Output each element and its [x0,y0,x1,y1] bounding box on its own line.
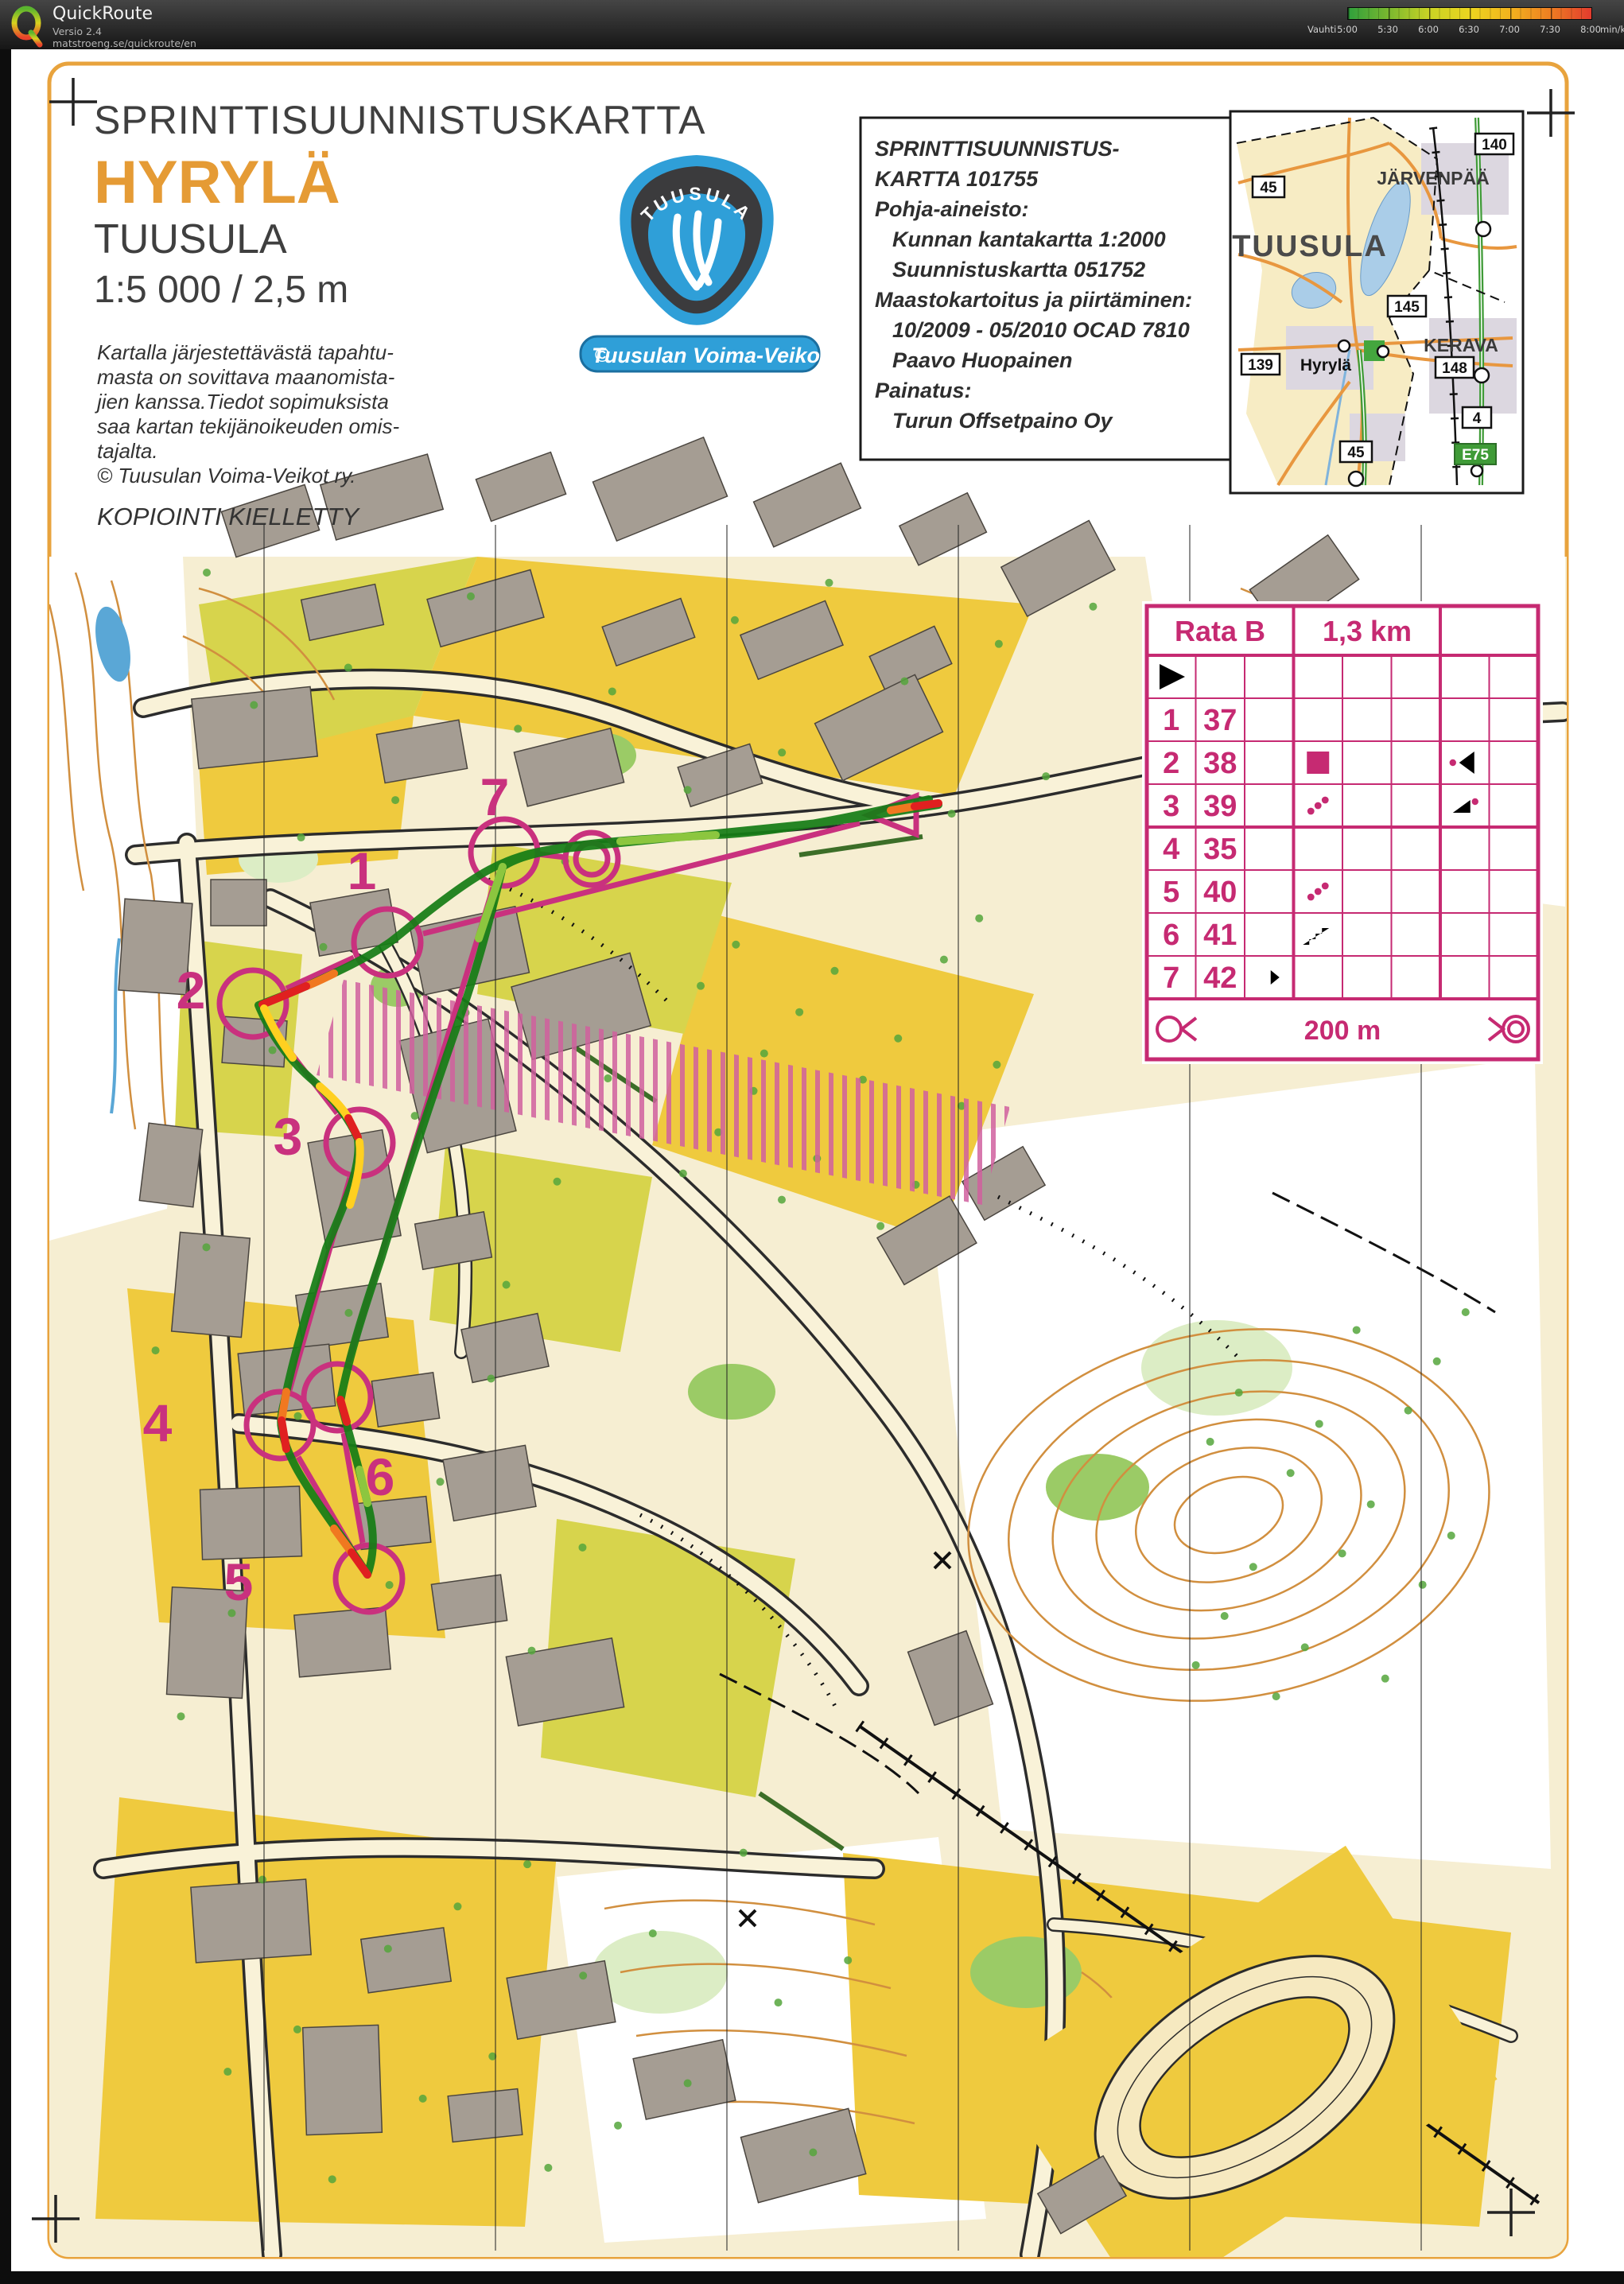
svg-text:7: 7 [1163,961,1179,995]
pace-tick: 6:00 [1418,24,1439,35]
page-title: SPRINTTISUUNNISTUSKARTTA [94,98,705,142]
svg-text:140: 140 [1482,137,1507,153]
control-number: 4 [143,1393,173,1452]
svg-text:35: 35 [1203,833,1237,866]
euro-route-badge: E75 [1462,447,1489,464]
control-description-sheet: Rata B 1,3 km 137 238 339 435 540 641 74… [1142,601,1543,1064]
app-title: QuickRoute [52,3,196,25]
control-number: 5 [224,1552,254,1611]
municipality: TUUSULA [94,216,287,262]
svg-text:KARTTA 101755: KARTTA 101755 [875,167,1039,191]
pace-tick: 8:00 [1580,24,1601,35]
pace-legend-unit: min/km [1600,24,1624,35]
control-number: 1 [348,841,377,900]
svg-text:42: 42 [1203,961,1237,995]
svg-text:Turun Offsetpaino Oy: Turun Offsetpaino Oy [892,409,1114,433]
svg-text:39: 39 [1203,790,1237,823]
svg-text:148: 148 [1442,360,1467,377]
svg-text:masta on sovittava maanomista-: masta on sovittava maanomista- [97,365,395,389]
svg-text:Kunnan kantakartta 1:2000: Kunnan kantakartta 1:2000 [892,227,1166,251]
control-number: 2 [177,961,206,1020]
quickroute-window: QuickRoute Versio 2.4 matstroeng.se/quic… [0,0,1624,2284]
inset-map: 45 140 145 139 148 4 45 E75 JÄRVENPÄÄ TU… [1230,111,1523,493]
feature-symbol-icon [1307,752,1329,774]
svg-text:45: 45 [1347,445,1365,461]
app-version: Versio 2.4 [52,25,196,38]
svg-text:37: 37 [1203,704,1237,737]
course-name: Rata B [1175,615,1265,647]
svg-text:tajalta.: tajalta. [97,439,158,463]
svg-text:145: 145 [1394,299,1420,316]
club-logo: TUUSULA © Tuusulan Voima-Veikot [581,155,828,371]
logo-banner-text: Tuusulan Voima-Veikot [592,344,828,367]
svg-text:Kartalla järjestettävästä tapa: Kartalla järjestettävästä tapahtu- [97,340,394,364]
svg-text:41: 41 [1203,919,1237,952]
quickroute-logo-icon [8,5,45,48]
control-number: 3 [274,1107,303,1166]
pace-gradient-bar [1347,7,1592,20]
pace-tick: 7:30 [1540,24,1560,35]
svg-text:Paavo Huopainen: Paavo Huopainen [892,348,1073,372]
svg-text:Suunnistuskartta 051752: Suunnistuskartta 051752 [892,258,1145,282]
svg-text:Pohja-aineisto:: Pohja-aineisto: [875,197,1029,221]
control-number: 6 [366,1447,395,1506]
app-url: matstroeng.se/quickroute/en [52,37,196,50]
svg-text:10/2009 - 05/2010 OCAD 7810: 10/2009 - 05/2010 OCAD 7810 [892,318,1190,342]
scan-edge-bottom [0,2271,1624,2284]
pace-tick: 5:30 [1377,24,1398,35]
pace-legend: Vauhti 5:00 5:30 6:00 6:30 7:00 7:30 8:0… [1306,5,1600,45]
svg-text:5: 5 [1163,876,1179,909]
pace-legend-prefix: Vauhti [1307,24,1336,35]
svg-text:2: 2 [1163,747,1179,780]
svg-text:45: 45 [1260,180,1277,196]
inset-label-tuusula: TUUSULA [1232,230,1388,263]
map-scale: 1:5 000 / 2,5 m [94,269,348,311]
svg-text:40: 40 [1203,876,1237,909]
svg-text:SPRINTTISUUNNISTUS-: SPRINTTISUUNNISTUS- [875,137,1120,161]
copy-notice: KOPIOINTI KIELLETTY [97,503,360,530]
svg-text:Maastokartoitus ja piirtäminen: Maastokartoitus ja piirtäminen: [875,288,1192,312]
inset-label-hyryla: Hyrylä [1300,356,1352,375]
toolbar: QuickRoute Versio 2.4 matstroeng.se/quic… [0,0,1624,49]
scale-distance: 200 m [1304,1016,1381,1046]
svg-text:jien kanssa.Tiedot sopimuksist: jien kanssa.Tiedot sopimuksista [95,390,389,414]
svg-text:6: 6 [1163,919,1179,952]
svg-text:38: 38 [1203,747,1237,780]
inset-label-kerava: KERAVA [1424,335,1498,355]
svg-text:4: 4 [1473,410,1482,427]
svg-text:3: 3 [1163,790,1179,823]
svg-text:© Tuusulan Voima-Veikot ry.: © Tuusulan Voima-Veikot ry. [97,464,356,487]
map-name: HYRYLÄ [94,149,340,216]
inset-label-jarvenpaa: JÄRVENPÄÄ [1377,168,1489,188]
scan-edge-left [0,45,11,2284]
svg-text:Painatus:: Painatus: [875,379,972,402]
pace-tick: 7:00 [1499,24,1520,35]
course-length: 1,3 km [1323,615,1412,647]
copyright-text: Kartalla järjestettävästä tapahtu- masta… [95,340,399,487]
map-canvas[interactable]: 1 2 3 4 5 6 7 SPRINTTISUUNNISTUSKARTTA H… [0,0,1624,2284]
svg-text:saa kartan tekijänoikeuden omi: saa kartan tekijänoikeuden omis- [97,414,399,438]
control-number: 7 [480,767,510,826]
svg-text:139: 139 [1248,357,1273,374]
info-box: SPRINTTISUUNNISTUS- KARTTA 101755 Pohja-… [861,118,1234,460]
pace-tick: 5:00 [1337,24,1358,35]
svg-text:1: 1 [1163,704,1179,737]
svg-text:4: 4 [1163,833,1179,866]
pace-legend-labels: Vauhti 5:00 5:30 6:00 6:30 7:00 7:30 8:0… [1347,24,1591,37]
pace-tick: 6:30 [1459,24,1479,35]
